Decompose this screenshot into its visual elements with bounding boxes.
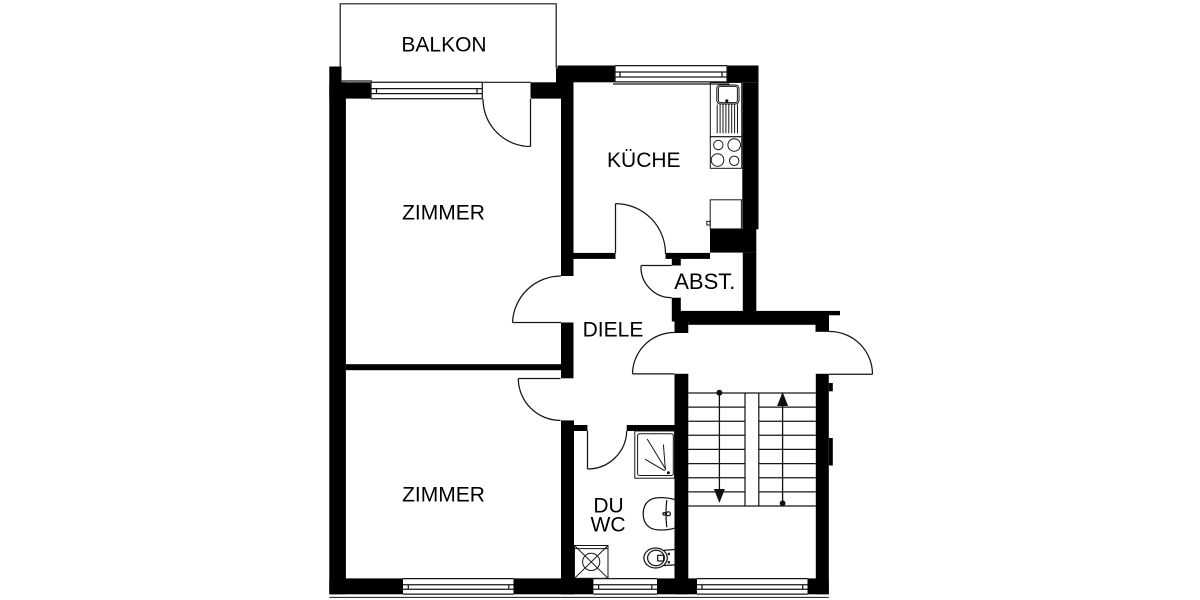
svg-text:WC: WC <box>591 514 626 537</box>
svg-text:ABST.: ABST. <box>674 269 735 294</box>
svg-text:KÜCHE: KÜCHE <box>607 149 681 172</box>
svg-text:ZIMMER: ZIMMER <box>402 484 485 507</box>
svg-text:DIELE: DIELE <box>583 318 644 341</box>
svg-text:ZIMMER: ZIMMER <box>402 202 485 225</box>
svg-text:BALKON: BALKON <box>401 34 486 57</box>
